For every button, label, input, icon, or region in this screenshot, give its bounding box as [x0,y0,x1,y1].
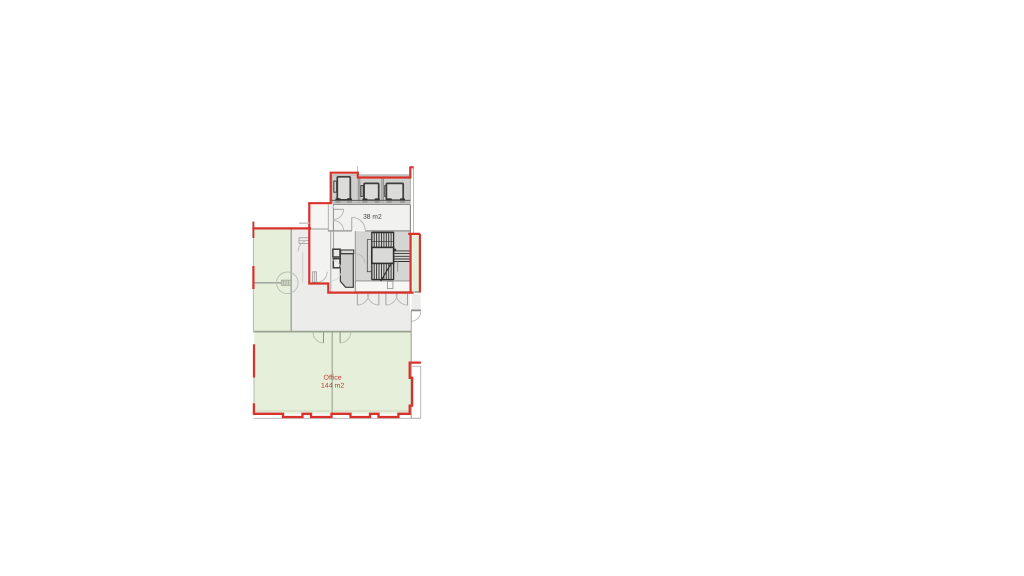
svg-text:Office: Office [324,375,342,382]
svg-text:144 m2: 144 m2 [321,383,344,390]
svg-text:38 m2: 38 m2 [363,214,382,221]
